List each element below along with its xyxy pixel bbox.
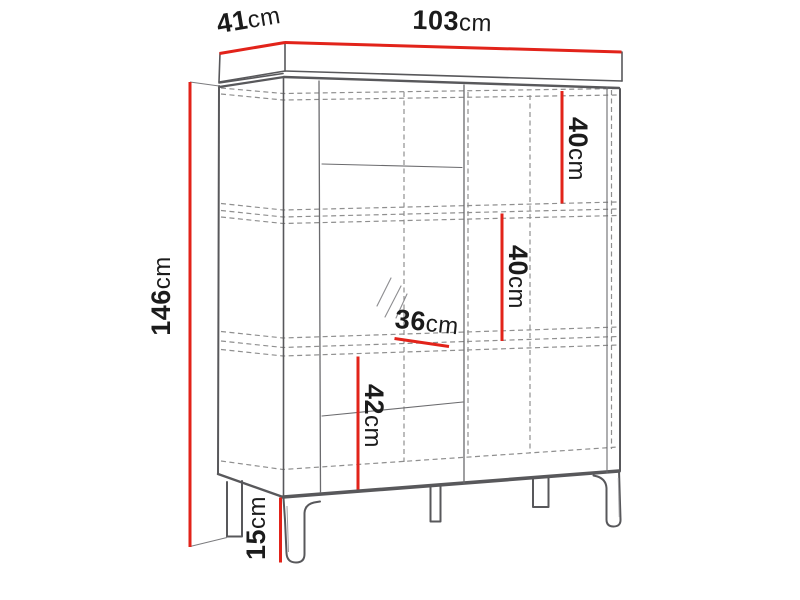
dim-top-section-label: 40cm [563, 117, 593, 181]
dim-height-label: 146cm [146, 256, 176, 336]
front-left-leg [284, 498, 321, 563]
front-right-leg [594, 471, 621, 527]
dim-width-line [285, 43, 622, 53]
extension-lines [190, 82, 227, 547]
cabinet-body [218, 74, 620, 498]
middle-right-leg [533, 478, 549, 508]
cabinet-drawing: 41cm 103cm 146cm 40cm 40cm 36cm 42cm 15c… [0, 0, 800, 600]
dim-shelf-depth-line [395, 339, 450, 347]
middle-left-leg [431, 485, 441, 522]
dim-lower-section-label: 42cm [359, 384, 389, 448]
dim-middle-section-label: 40cm [503, 245, 533, 309]
dim-width-label: 103cm [412, 5, 492, 37]
cabinet-legs [227, 471, 621, 563]
dim-leg-height-label: 15cm [241, 496, 271, 560]
dimension-lines [190, 43, 622, 563]
furniture-dimension-diagram: 41cm 103cm 146cm 40cm 40cm 36cm 42cm 15c… [0, 0, 800, 600]
dim-depth-line [220, 43, 286, 54]
hidden-edges [221, 88, 618, 470]
back-left-leg [227, 481, 242, 537]
cabinet-top-panel [219, 42, 622, 82]
glass-shelves [322, 164, 463, 416]
dim-depth-label: 41cm [214, 0, 282, 39]
